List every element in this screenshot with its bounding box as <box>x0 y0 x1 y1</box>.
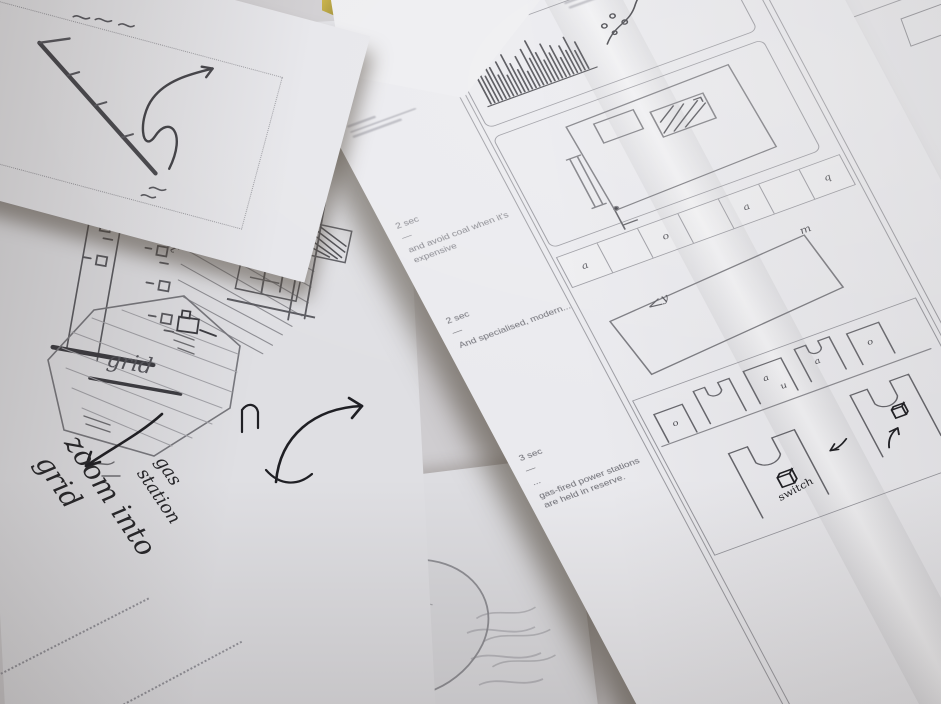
building-letter: a <box>761 373 771 384</box>
illegible-caption <box>347 102 419 138</box>
building-letter: o <box>865 337 876 348</box>
faint-pencil-scribbles <box>455 615 565 704</box>
caption-avoid-coal: 2 sec — and avoid coal when it's expensi… <box>394 182 528 266</box>
building-letter: o <box>670 418 681 429</box>
photo-of-storyboard-sheets: The fridge moves down The top half ... w… <box>0 0 941 704</box>
building-letter: u <box>778 380 789 391</box>
handwriting-grid: grid <box>105 347 154 380</box>
block-label: y <box>657 291 671 305</box>
curved-arrow-icon <box>262 390 382 495</box>
block-corner-label: m <box>797 222 813 236</box>
building-letter: a <box>812 356 822 367</box>
caption-specialised: 2 sec — And specialised, modern... <box>444 277 573 351</box>
